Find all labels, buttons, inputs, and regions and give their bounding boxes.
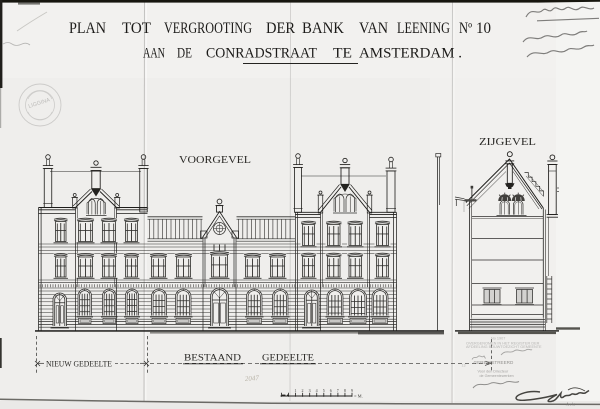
svg-text:CONRADSTRAAT: CONRADSTRAAT <box>206 46 317 62</box>
svg-text:2: 2 <box>302 388 304 393</box>
svg-text:DER: DER <box>266 20 296 37</box>
svg-text:VOORGEVEL: VOORGEVEL <box>179 154 251 166</box>
svg-text:VAN: VAN <box>359 20 388 37</box>
svg-text:9: 9 <box>351 388 353 393</box>
svg-text:2047: 2047 <box>245 374 260 383</box>
svg-text:AMSTERDAM .: AMSTERDAM . <box>359 46 462 62</box>
svg-text:No 1907: No 1907 <box>491 337 505 341</box>
svg-text:BANK: BANK <box>302 20 345 37</box>
svg-text:7: 7 <box>337 388 339 393</box>
svg-text:PLAN: PLAN <box>69 20 106 37</box>
svg-text:5: 5 <box>323 388 325 393</box>
svg-text:= M.: = M. <box>354 394 363 399</box>
svg-text:10: 10 <box>476 20 491 37</box>
svg-text:AAN: AAN <box>143 46 165 62</box>
svg-text:ZIJGEVEL: ZIJGEVEL <box>479 136 536 148</box>
svg-text:DE: DE <box>177 46 192 62</box>
svg-text:VERGROOTING: VERGROOTING <box>164 20 252 37</box>
svg-text:1: 1 <box>295 388 297 393</box>
svg-text:8: 8 <box>344 388 346 393</box>
svg-text:LEENING: LEENING <box>397 20 450 37</box>
svg-text:AFDEELING BOUWTOEZICHT GEMEENT: AFDEELING BOUWTOEZICHT GEMEENTE <box>466 345 542 349</box>
svg-text:Archt: Archt <box>565 402 576 407</box>
svg-text:TOT: TOT <box>122 20 152 37</box>
svg-text:BESTAAND: BESTAAND <box>184 353 242 363</box>
svg-text:Voor den Directeur: Voor den Directeur <box>478 370 510 374</box>
svg-text:TE: TE <box>333 46 352 62</box>
svg-text:GEREGISTREERD: GEREGISTREERD <box>474 360 515 365</box>
svg-text:6: 6 <box>330 388 332 393</box>
svg-text:NIEUW GEDEELTE: NIEUW GEDEELTE <box>46 360 112 369</box>
svg-text:de Gemeentewerken: de Gemeentewerken <box>480 374 514 378</box>
svg-text:4: 4 <box>316 388 318 393</box>
svg-text:Nº: Nº <box>459 20 472 37</box>
svg-text:13: 13 <box>462 364 466 368</box>
svg-text:GEDEELTE: GEDEELTE <box>262 353 315 363</box>
svg-text:3: 3 <box>309 388 311 393</box>
